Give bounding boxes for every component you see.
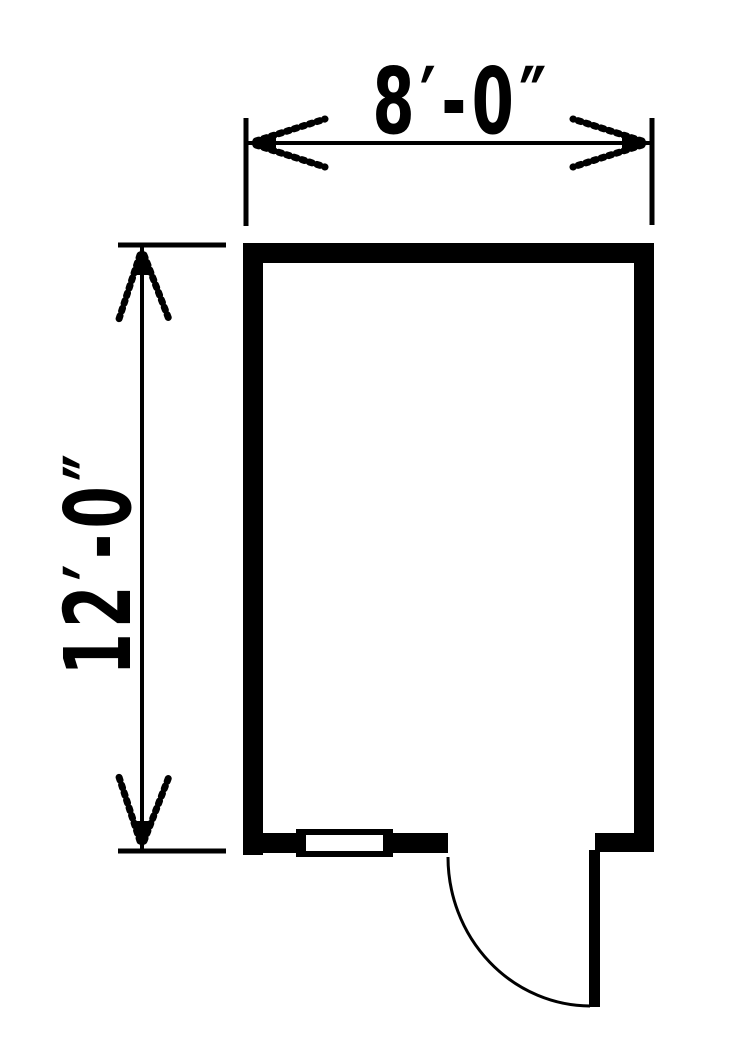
floor-plan: 8′-0″ 12′-0″: [0, 0, 750, 1056]
arrow-up-tip: [131, 245, 153, 275]
wall-right: [634, 243, 654, 852]
arrow-right-tip: [622, 132, 652, 154]
wall-left: [243, 243, 263, 855]
arrow-down-tip: [131, 821, 153, 851]
door: [448, 850, 600, 1007]
door-swing-arc: [448, 857, 590, 1006]
window-pane: [306, 835, 383, 851]
wall-top: [243, 243, 654, 263]
window: [296, 829, 393, 857]
wall-bottom-right-stub: [595, 833, 654, 852]
room-walls: [243, 243, 654, 855]
width-dimension-label: 8′-0″: [372, 56, 551, 148]
arrow-left-tip: [246, 132, 276, 154]
height-dimension-label: 12′-0″: [53, 449, 145, 676]
door-leaf: [589, 850, 600, 1007]
